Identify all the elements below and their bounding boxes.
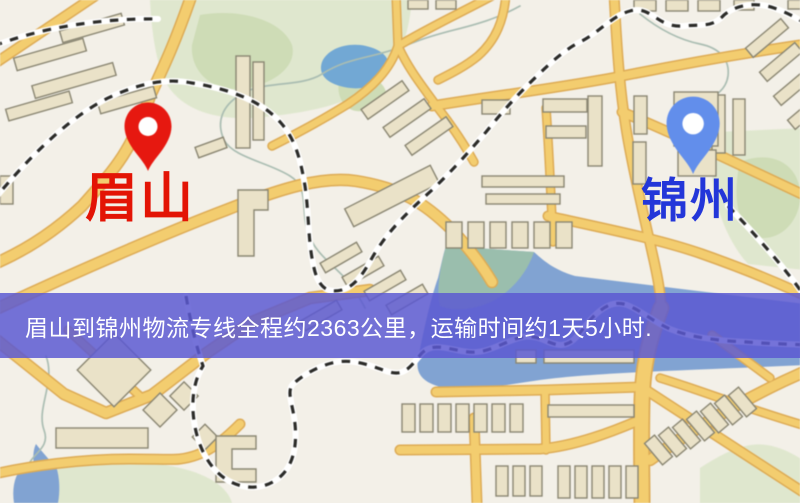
origin-pin-icon[interactable] bbox=[125, 103, 172, 172]
route-info-text: 眉山到锦州物流专线全程约2363公里，运输时间约1天5小时. bbox=[0, 309, 652, 343]
route-info-banner: 眉山到锦州物流专线全程约2363公里，运输时间约1天5小时. bbox=[0, 293, 800, 358]
destination-city-label: 锦州 bbox=[641, 179, 739, 226]
map-canvas[interactable] bbox=[0, 0, 800, 503]
logistics-route-map: 眉山 锦州 眉山到锦州物流专线全程约2363公里，运输时间约1天5小时. bbox=[0, 0, 800, 503]
origin-city-label: 眉山 bbox=[85, 173, 195, 226]
